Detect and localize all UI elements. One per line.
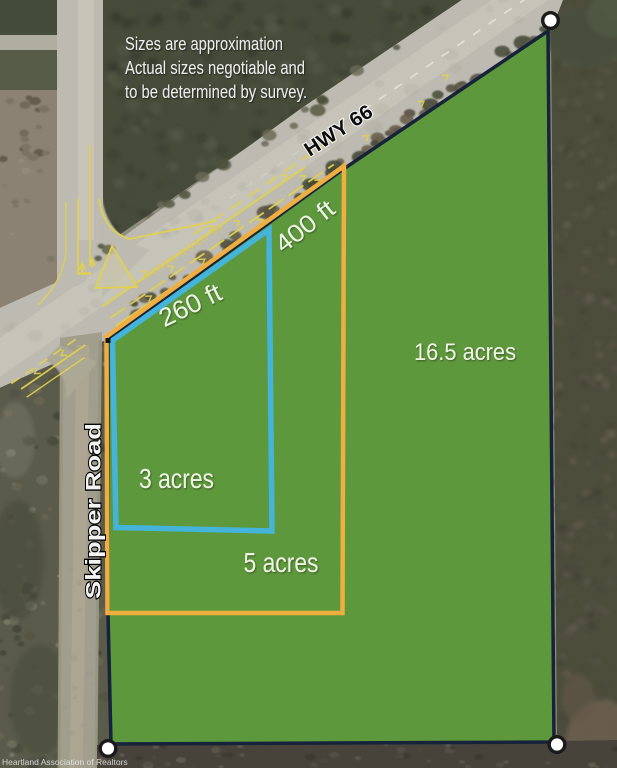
svg-text:Heartland Association of Realt: Heartland Association of Realtors xyxy=(2,757,128,767)
svg-text:5 acres: 5 acres xyxy=(244,547,319,578)
svg-text:16.5 acres: 16.5 acres xyxy=(414,339,516,366)
svg-text:to be determined by survey.: to be determined by survey. xyxy=(125,81,307,102)
svg-text:3 acres: 3 acres xyxy=(139,463,214,494)
svg-text:Sizes are approximation: Sizes are approximation xyxy=(125,33,283,54)
svg-text:Actual sizes negotiable and: Actual sizes negotiable and xyxy=(125,57,305,78)
svg-text:Skipper Road: Skipper Road xyxy=(83,423,106,599)
